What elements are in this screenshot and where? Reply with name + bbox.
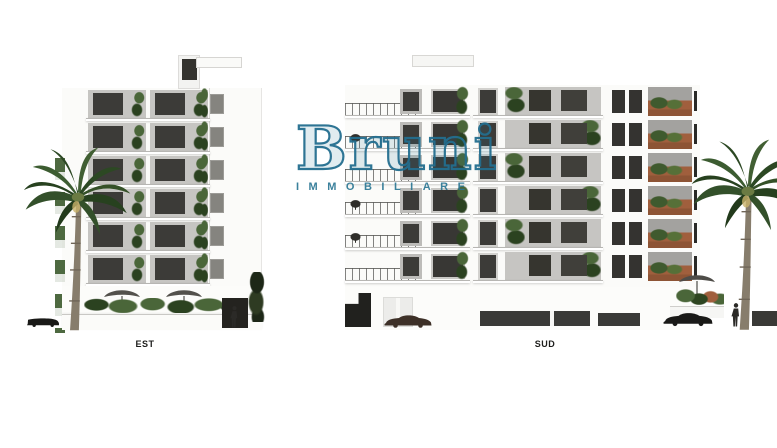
recessed-balcony: [505, 186, 601, 214]
window: [561, 90, 587, 111]
pillar: [550, 311, 554, 326]
window: [400, 221, 422, 246]
window: [561, 222, 587, 243]
balcony-plant: [455, 185, 470, 215]
recessed-balcony: [505, 87, 601, 115]
window: [561, 123, 587, 144]
floor-row: [345, 184, 700, 217]
entrance-kiosk: [345, 293, 371, 327]
window: [478, 253, 498, 280]
vine-planter: [200, 121, 209, 154]
vine-planter: [200, 253, 209, 286]
window: [529, 255, 551, 276]
roof-slab: [412, 55, 474, 67]
balcony-window: [155, 93, 185, 115]
recessed-balcony: [505, 219, 601, 247]
balcony-window: [155, 126, 185, 148]
vine-planter: [200, 187, 209, 220]
dark-bush: [248, 272, 266, 322]
window-pair: [612, 189, 642, 212]
window: [529, 123, 551, 144]
recessed-balcony: [505, 120, 601, 148]
vine-planter: [200, 88, 209, 121]
balcony-plant: [455, 218, 470, 248]
vine-planter: [505, 87, 525, 115]
terracotta-balcony: [648, 186, 692, 215]
vine-planter: [200, 154, 209, 187]
elevation-rendering: Bruni IMMOBILIARE EST SUD: [0, 0, 777, 448]
window: [478, 187, 498, 214]
balcony-window: [155, 258, 185, 280]
balcony-plant: [350, 200, 361, 213]
window-pair: [612, 255, 642, 278]
person-figure: [230, 306, 239, 328]
recessed-balcony: [505, 252, 601, 280]
roof-tower-window: [182, 59, 197, 80]
floor-row: [345, 151, 700, 184]
window: [400, 155, 422, 180]
window-pair: [612, 123, 642, 146]
window-pair: [612, 156, 642, 179]
floor-row: [345, 85, 700, 118]
side-window: [210, 127, 224, 147]
window: [529, 90, 551, 111]
window-pair: [612, 90, 642, 113]
elevation-label-sud: SUD: [520, 339, 570, 349]
terracotta-balcony: [648, 153, 692, 182]
elevation-label-est: EST: [120, 339, 170, 349]
window: [561, 156, 587, 177]
window: [529, 156, 551, 177]
floor-slab: [473, 280, 603, 283]
window: [400, 89, 422, 114]
window: [400, 122, 422, 147]
vine-planter: [505, 153, 525, 181]
balcony-window: [155, 192, 185, 214]
floor-row: [345, 118, 700, 151]
recessed-balcony: [505, 153, 601, 181]
balcony-plant: [455, 86, 470, 116]
window: [478, 220, 498, 247]
palm-tree: [688, 118, 777, 333]
terracotta-balcony: [648, 120, 692, 149]
side-window: [210, 94, 224, 114]
balcony-window: [93, 93, 123, 115]
building-sud: [345, 85, 700, 330]
balcony-plant: [350, 233, 361, 246]
window: [561, 189, 587, 210]
floor-row: [62, 88, 262, 121]
floor-row: [345, 217, 700, 250]
balcony-plant: [455, 152, 470, 182]
window: [400, 188, 422, 213]
car-silhouette: [383, 312, 433, 329]
balcony-window: [155, 225, 185, 247]
terracotta-balcony: [648, 219, 692, 248]
side-window: [210, 259, 224, 279]
window: [478, 154, 498, 181]
vine-planter: [200, 220, 209, 253]
side-window: [210, 193, 224, 213]
sud-floors: [345, 85, 700, 283]
window: [400, 254, 422, 279]
window: [561, 255, 587, 276]
storefront-band: [598, 313, 640, 326]
side-window: [210, 226, 224, 246]
roof-slab: [196, 57, 242, 68]
window: [478, 121, 498, 148]
window: [529, 222, 551, 243]
window: [529, 189, 551, 210]
window-pair: [612, 222, 642, 245]
floor-slab: [345, 280, 470, 283]
vine-planter: [505, 219, 525, 247]
balcony-window: [155, 159, 185, 181]
balcony-plant: [455, 251, 470, 281]
floor-row: [345, 250, 700, 283]
window: [478, 88, 498, 115]
balcony-plant: [350, 134, 361, 147]
storefront-band: [480, 311, 590, 326]
side-window: [210, 160, 224, 180]
balcony-plant: [455, 119, 470, 149]
palm-tree: [14, 128, 142, 332]
balcony: [88, 90, 146, 118]
terracotta-balcony: [648, 87, 692, 116]
